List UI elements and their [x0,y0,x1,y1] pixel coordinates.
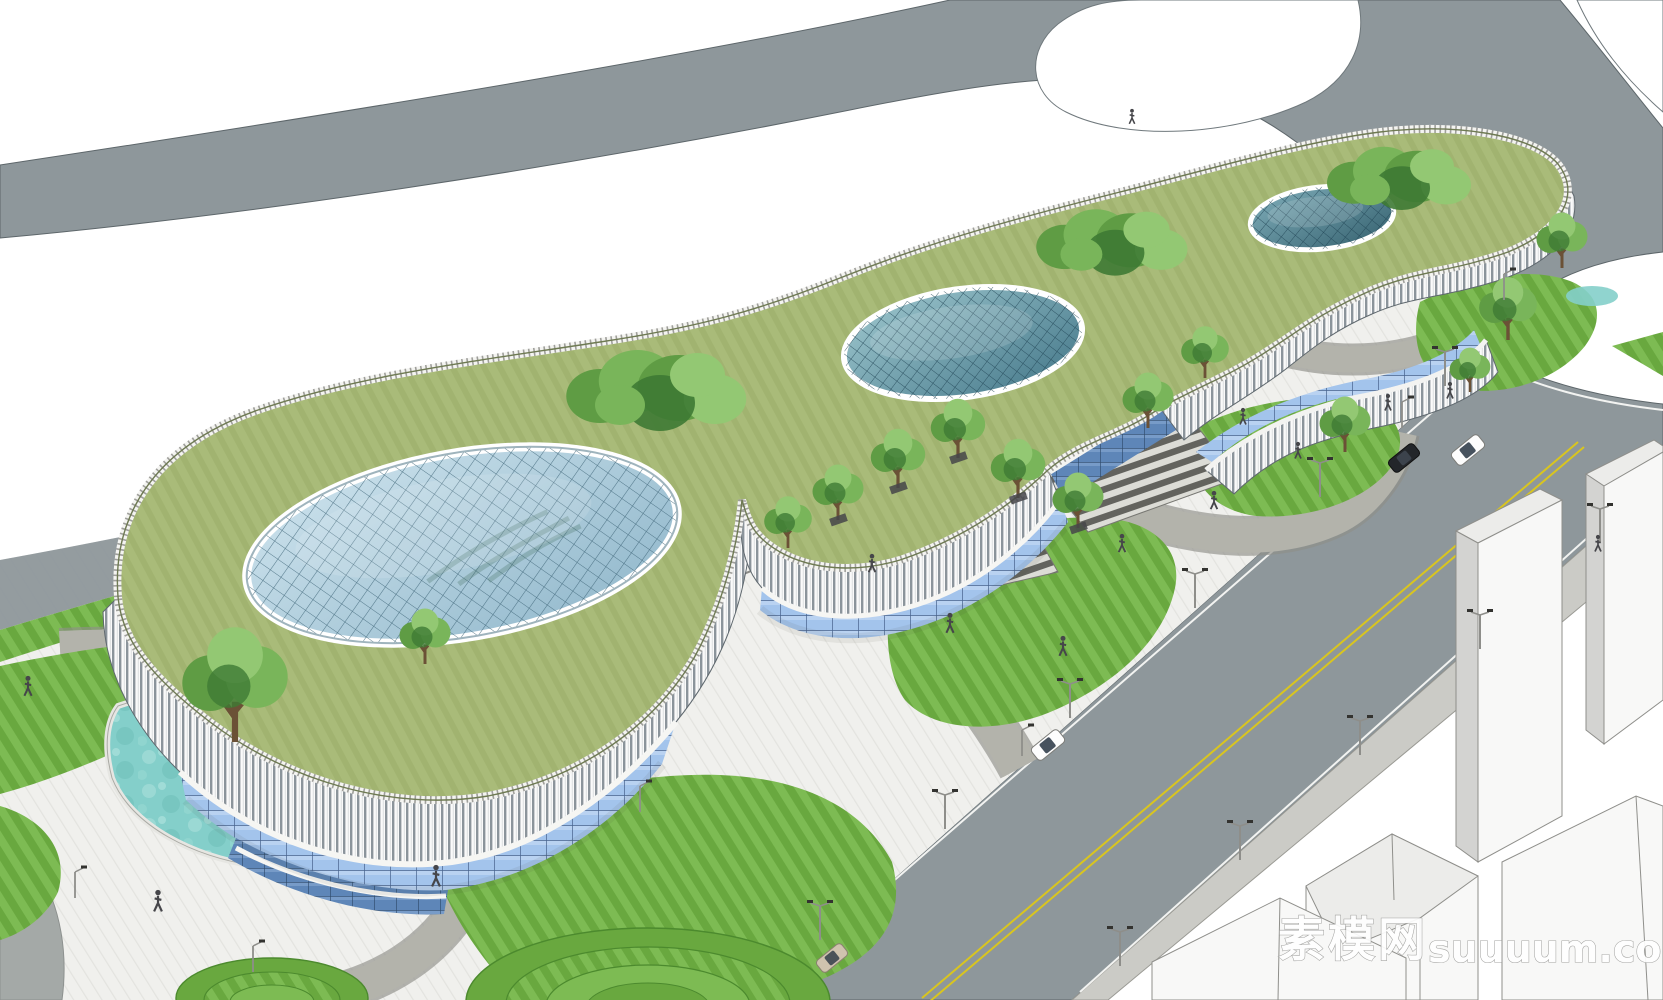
context-building-slab-b [1586,440,1663,744]
render-viewport: 素模网suuuum.com [0,0,1663,1000]
watermark-site-name: 素模网 [1278,913,1428,968]
render-canvas: 素模网suuuum.com [0,0,1663,1000]
watermark-domain: suuuum.com [1428,927,1663,971]
right-end-pool [1566,286,1618,306]
context-building-slab-a [1456,489,1562,862]
